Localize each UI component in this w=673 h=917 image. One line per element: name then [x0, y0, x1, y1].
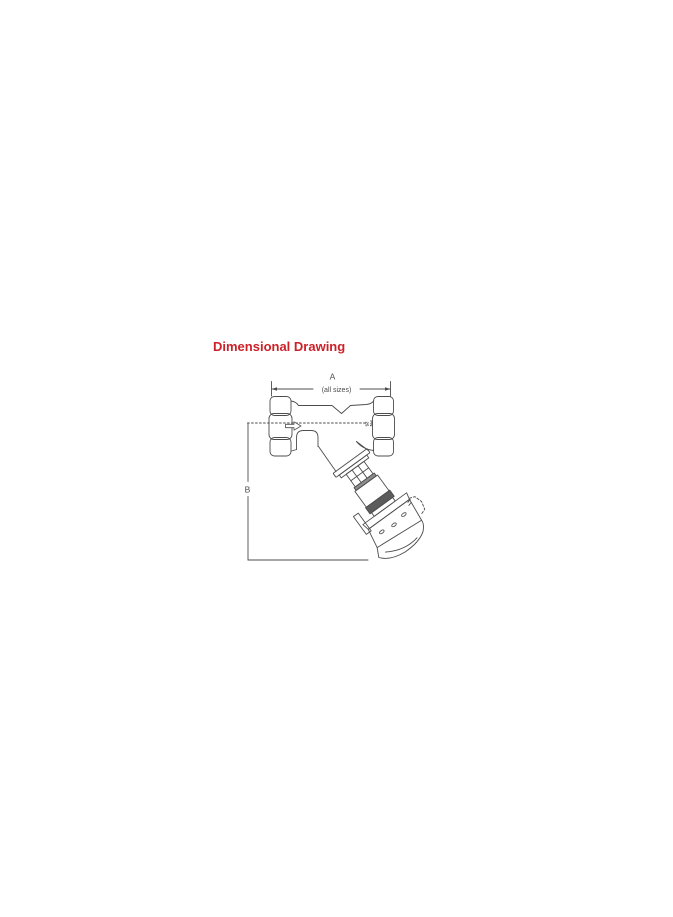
pn-rating-label: PN 25 — [364, 420, 374, 427]
valve-body: PN 25 — [269, 397, 395, 472]
dim-a-note: (all sizes) — [322, 387, 352, 394]
dim-b-label: B — [245, 485, 251, 495]
head-slots — [378, 512, 408, 536]
body-top-contour — [291, 401, 374, 414]
body-bottom-left — [292, 450, 297, 452]
dim-a-arrowhead-right — [385, 387, 391, 390]
branch-line-right — [357, 442, 370, 452]
ribbed-collar — [346, 461, 373, 486]
dim-a-arrowhead-left — [272, 387, 278, 390]
dimensional-drawing-figure: A (all sizes) B — [240, 362, 455, 567]
strainer-dome — [297, 431, 319, 450]
dimension-b: B — [245, 423, 368, 560]
body-bottom-right — [357, 442, 374, 451]
dim-a-label: A — [330, 372, 336, 382]
dimension-a: A (all sizes) — [272, 372, 391, 397]
head-cap — [374, 517, 431, 566]
page: Dimensional Drawing A (all sizes) B — [0, 0, 673, 917]
right-union-nut — [373, 397, 395, 457]
bonnet-assembly — [323, 441, 440, 566]
indicator-band — [366, 490, 395, 514]
branch-line-left — [319, 447, 337, 472]
page-title: Dimensional Drawing — [213, 339, 345, 354]
side-tab — [353, 513, 371, 534]
bonnet-flange — [333, 449, 370, 478]
